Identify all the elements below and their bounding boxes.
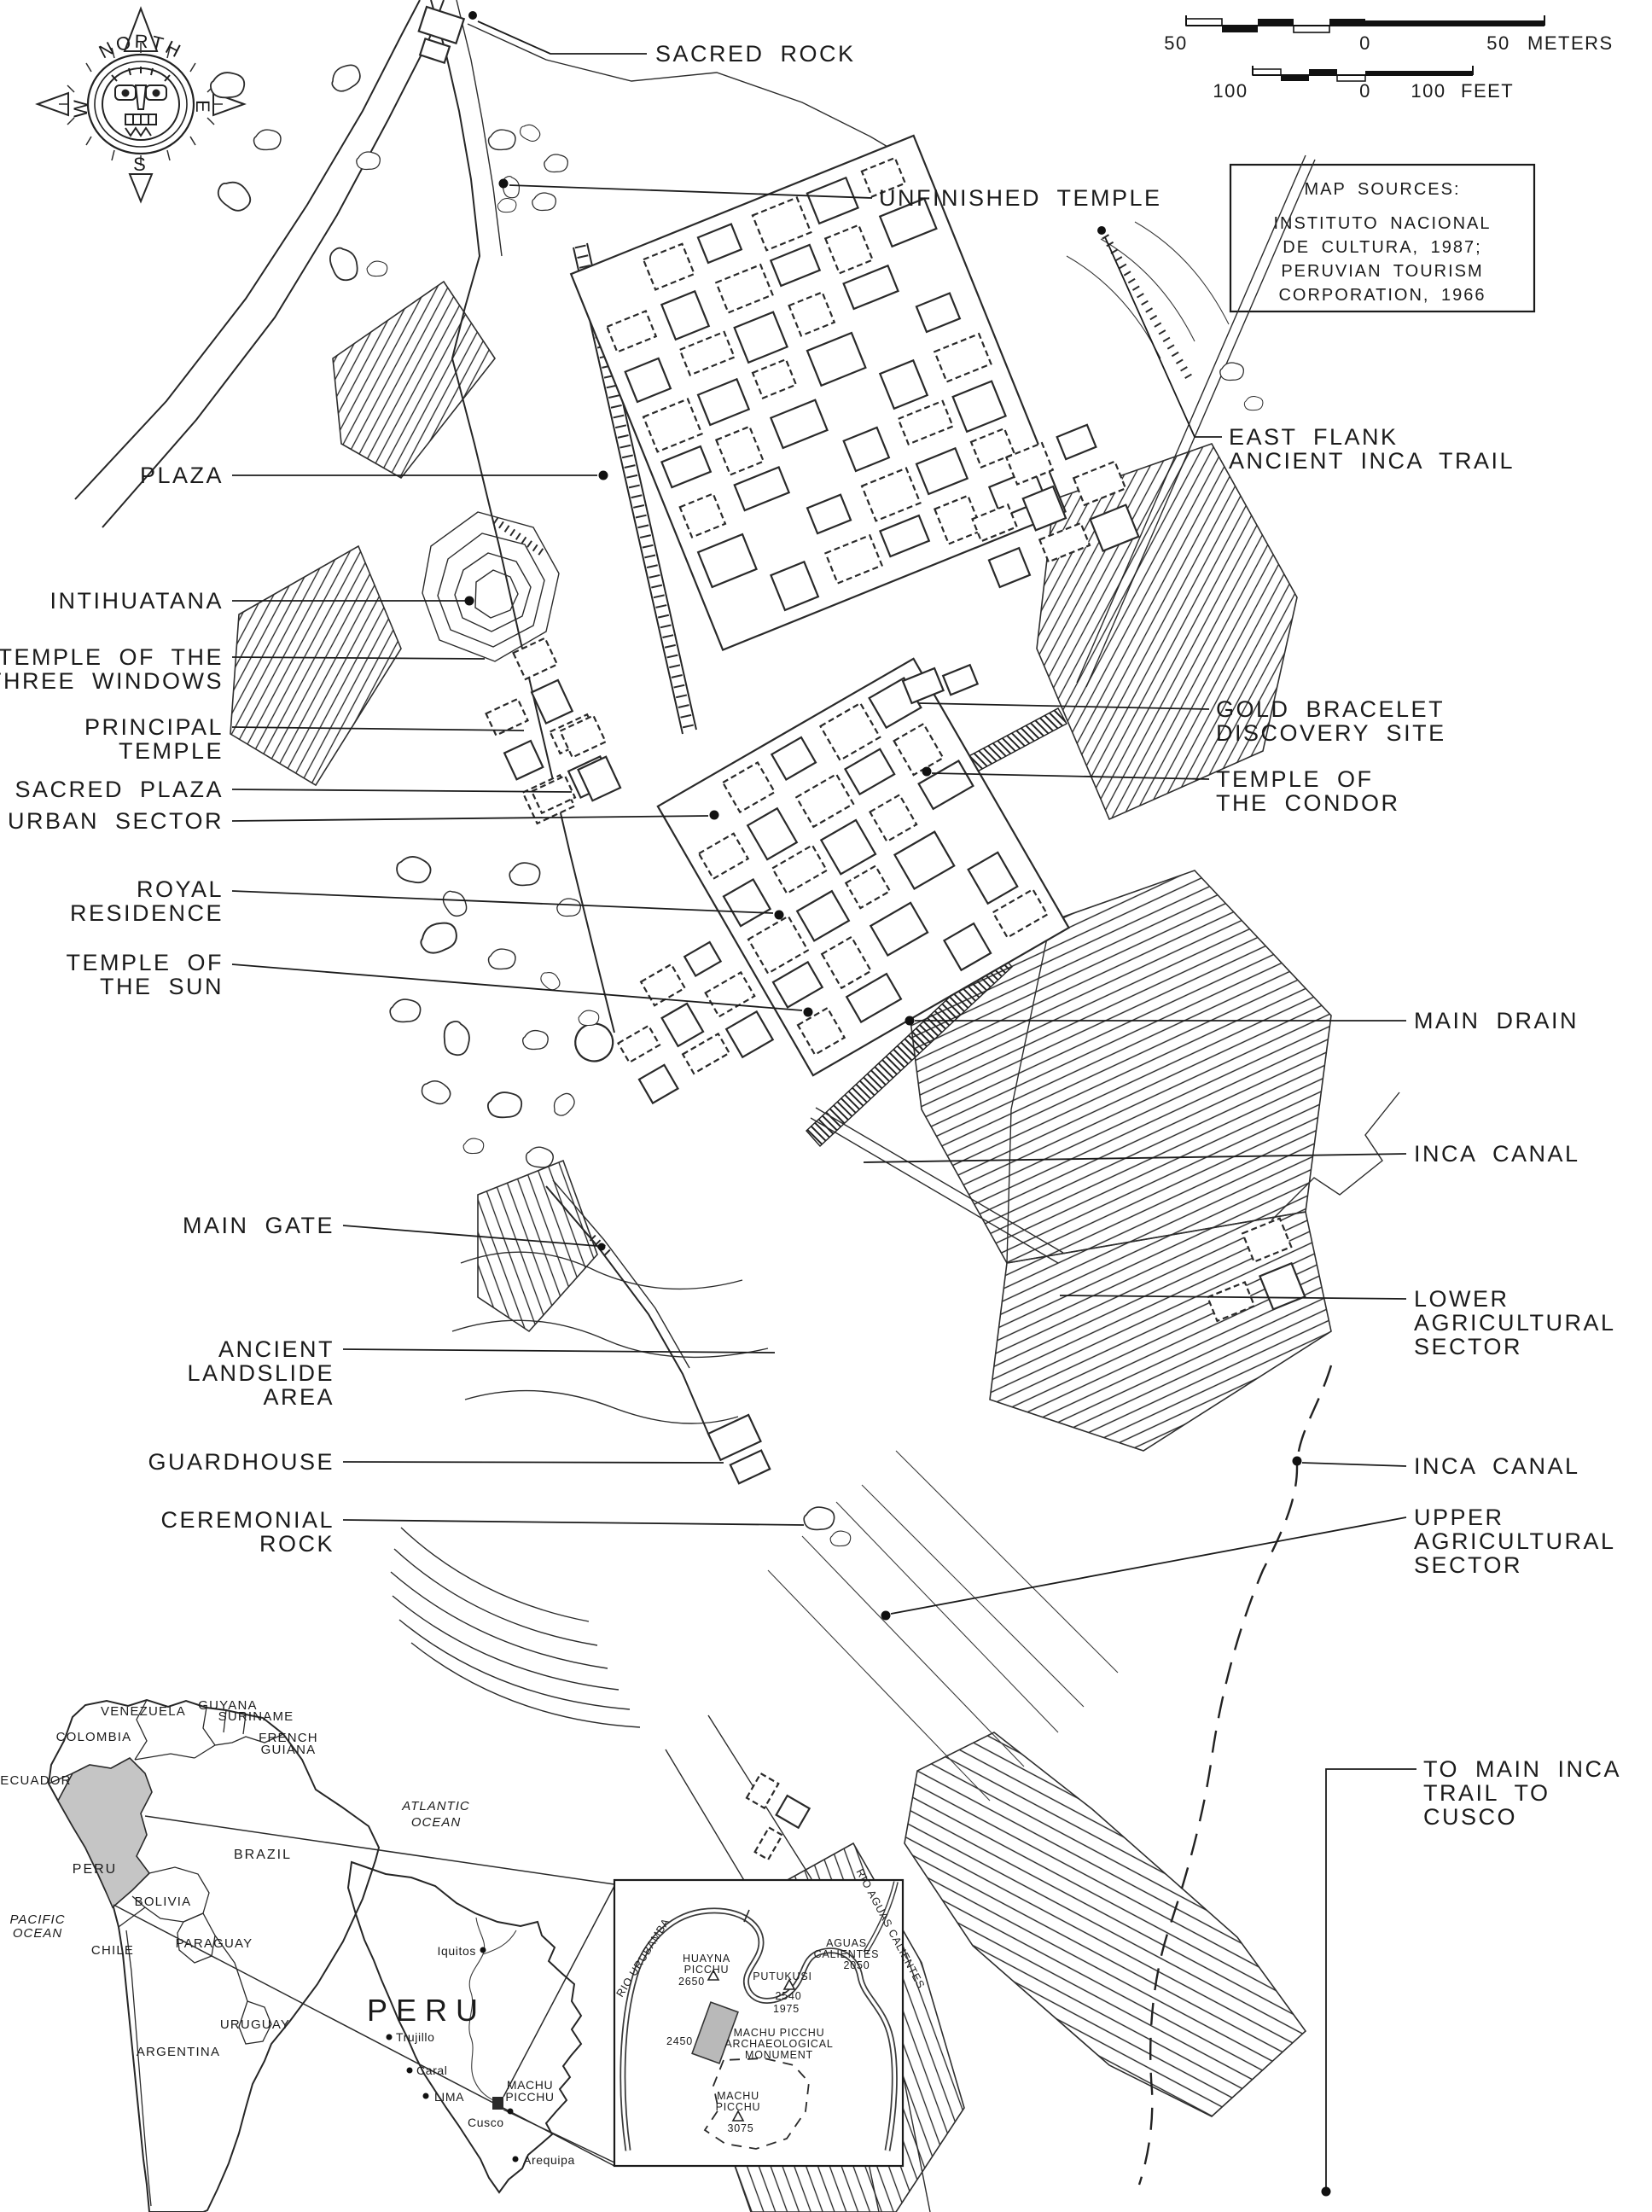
label-lower-1: LOWER [1414, 1286, 1509, 1312]
label-venezuela: VENEZUELA [101, 1704, 186, 1719]
label-huayna-elev: 2650 [678, 1976, 705, 1988]
label-east-flank-2: ANCIENT INCA TRAIL [1229, 448, 1515, 474]
label-cusco-trail-3: CUSCO [1423, 1804, 1517, 1830]
label-guiana: GUIANA [261, 1743, 317, 1757]
label-huayna-1: HUAYNA [683, 1953, 730, 1965]
label-peak-elev: 3075 [727, 2122, 753, 2134]
label-gold-1: GOLD BRACELET [1216, 696, 1445, 722]
compass-south-label: S [133, 154, 148, 175]
label-colombia: COLOMBIA [56, 1730, 132, 1744]
building [706, 972, 755, 1016]
label-chile: CHILE [91, 1943, 134, 1958]
compass-east-label: E [192, 100, 213, 115]
label-upper-3: SECTOR [1414, 1552, 1522, 1578]
label-ceremonial-2: ROCK [259, 1531, 334, 1557]
machu-picchu-map-page: NORTH W E S 50 0 50 METERS 100 0 100 FEE… [0, 0, 1652, 2212]
label-condor-2: THE CONDOR [1216, 790, 1400, 816]
terrace-west-flank [230, 546, 401, 785]
label-peru-sa: PERU [73, 1862, 117, 1877]
label-atlantic-1: ATLANTIC [401, 1799, 469, 1813]
label-cusco-trail-1: TO MAIN INCA [1423, 1756, 1621, 1782]
sources-line3: PERUVIAN TOURISM [1281, 262, 1483, 281]
sources-line2: DE CULTURA, 1987; [1283, 238, 1481, 257]
label-landslide-1: ANCIENT [218, 1336, 334, 1362]
sacred-rock-buildings [412, 7, 464, 64]
label-putukusi: PUTUKUSI [753, 1970, 812, 1982]
label-putukusi-elev: 2540 [775, 1990, 801, 2002]
scale-meters-left: 50 [1164, 32, 1187, 54]
peru-country-inset: PERU Iquitos Trujillo Caral LIMA Cusco A… [348, 1862, 581, 2192]
scale-meters-zero: 0 [1359, 32, 1371, 54]
label-monument-3: MONUMENT [745, 2049, 813, 2061]
label-uruguay: URUGUAY [220, 2017, 290, 2032]
label-mp-2: PICCHU [505, 2090, 554, 2104]
east-flank-trail-hatched [1101, 229, 1190, 380]
inset-projection-lines [113, 1816, 614, 2166]
label-brazil: BRAZIL [234, 1848, 292, 1862]
terrace-near-gate [478, 1161, 597, 1331]
ceremonial-rock [804, 1507, 834, 1529]
scale-feet-unit: FEET [1461, 80, 1514, 102]
label-trujillo: Trujillo [396, 2030, 435, 2044]
label-monument-1: MACHU PICCHU [734, 2027, 825, 2039]
building [747, 1773, 778, 1808]
building [639, 1065, 678, 1103]
scale-feet-zero: 0 [1359, 80, 1371, 102]
urban-sector-buildings [571, 136, 1065, 650]
terrace-upper-west [333, 282, 495, 478]
scale-meters-right: 50 [1486, 32, 1509, 54]
label-plaza: PLAZA [140, 463, 224, 488]
compass-rose: NORTH W E S [38, 9, 244, 201]
scale-meters-unit: METERS [1527, 32, 1614, 54]
label-main-gate: MAIN GATE [183, 1213, 334, 1238]
building [777, 1796, 810, 1828]
label-peak-1: MACHU [717, 2090, 759, 2102]
label-monument-elev: 2450 [666, 2035, 693, 2047]
label-upper-2: AGRICULTURAL [1414, 1528, 1616, 1554]
guardhouse-buildings [708, 1415, 773, 1487]
label-bolivia: BOLIVIA [135, 1895, 192, 1909]
scale-feet-left: 100 [1213, 80, 1248, 102]
south-america-inset: VENEZUELA GUYANA SURINAME FRENCH GUIANA … [0, 1698, 469, 2212]
label-river-elev: 1975 [773, 2003, 800, 2015]
terrace-upper-east [1037, 444, 1297, 819]
compass-west-label: W [70, 97, 91, 118]
building [726, 1011, 773, 1057]
map-sources-box: MAP SOURCES: INSTITUTO NACIONAL DE CULTU… [1230, 165, 1534, 311]
label-pacific-2: OCEAN [13, 1926, 62, 1941]
label-aguas-2: CALIENTES [814, 1948, 880, 1960]
label-unfinished-temple: UNFINISHED TEMPLE [879, 185, 1162, 211]
label-guardhouse: GUARDHOUSE [148, 1449, 334, 1475]
building [684, 942, 720, 976]
label-ceremonial-1: CEREMONIAL [160, 1507, 334, 1533]
label-peak-2: PICCHU [716, 2101, 761, 2113]
building [1057, 425, 1096, 459]
label-sun-1: TEMPLE OF [66, 950, 224, 975]
label-arequipa: Arequipa [523, 2153, 575, 2167]
building [989, 548, 1030, 587]
label-three-windows-2: THREE WINDOWS [0, 668, 224, 694]
label-iquitos: Iquitos [438, 1944, 476, 1958]
label-aguas-1: AGUAS [826, 1937, 867, 1949]
label-caral: Caral [416, 2064, 447, 2077]
label-sacred-plaza: SACRED PLAZA [15, 777, 224, 802]
sources-line1: INSTITUTO NACIONAL [1274, 214, 1492, 233]
label-upper-1: UPPER [1414, 1505, 1504, 1530]
label-condor-1: TEMPLE OF [1216, 766, 1374, 792]
label-lima: LIMA [434, 2090, 464, 2104]
label-monument-2: ARCHAEOLOGICAL [724, 2038, 833, 2050]
label-royal-1: ROYAL [137, 876, 224, 902]
label-sun-2: THE SUN [100, 974, 224, 999]
label-cusco: Cusco [468, 2116, 504, 2129]
label-pacific-1: PACIFIC [9, 1912, 65, 1927]
sources-line4: CORPORATION, 1966 [1278, 286, 1486, 305]
label-intihuatana: INTIHUATANA [49, 588, 224, 614]
label-atlantic-2: OCEAN [411, 1815, 461, 1830]
label-lower-3: SECTOR [1414, 1334, 1522, 1359]
label-peru-country: PERU [367, 1993, 486, 2028]
label-sacred-rock: SACRED ROCK [655, 41, 856, 67]
label-inca-canal-lower: INCA CANAL [1414, 1453, 1580, 1479]
label-royal-2: RESIDENCE [70, 900, 224, 926]
scale-bar-meters: 50 0 50 METERS [1164, 15, 1613, 54]
machu-picchu-marker [492, 2097, 503, 2110]
building [513, 638, 557, 679]
detail-inset: HUAYNA PICCHU 2650 PUTUKUSI 2540 1975 AG… [614, 1867, 928, 2166]
peru-highlight [58, 1758, 152, 1907]
label-suriname: SURINAME [218, 1709, 294, 1724]
label-landslide-2: LANDSLIDE [187, 1360, 334, 1386]
label-principal-2: TEMPLE [119, 738, 224, 764]
label-aguas-elev: 2050 [843, 1959, 870, 1971]
label-inca-canal-upper: INCA CANAL [1414, 1141, 1580, 1167]
building [504, 741, 543, 779]
map-canvas: NORTH W E S 50 0 50 METERS 100 0 100 FEE… [0, 0, 1652, 2212]
label-huayna-2: PICCHU [684, 1964, 730, 1976]
label-argentina: ARGENTINA [137, 2045, 220, 2059]
building [619, 1026, 660, 1062]
label-east-flank-1: EAST FLANK [1229, 424, 1399, 450]
label-cusco-trail-2: TRAIL TO [1423, 1780, 1550, 1806]
intihuatana-hill [422, 512, 559, 661]
label-landslide-3: AREA [263, 1384, 334, 1410]
label-lower-2: AGRICULTURAL [1414, 1310, 1616, 1336]
tail-buildings [725, 1773, 812, 1865]
building [755, 1827, 782, 1860]
label-main-drain: MAIN DRAIN [1414, 1008, 1579, 1033]
label-three-windows-1: TEMPLE OF THE [0, 644, 224, 670]
label-gold-2: DISCOVERY SITE [1216, 720, 1446, 746]
scale-feet-right: 100 [1411, 80, 1445, 102]
label-ecuador: ECUADOR [0, 1773, 71, 1788]
sources-title: MAP SOURCES: [1305, 180, 1461, 199]
temple-of-sun-buildings [563, 936, 778, 1127]
label-urban-sector: URBAN SECTOR [8, 808, 224, 834]
terrace-fan-lower [905, 1732, 1306, 2116]
label-principal-1: PRINCIPAL [84, 714, 224, 740]
scale-bar-feet: 100 0 100 FEET [1213, 66, 1514, 102]
building [662, 1004, 703, 1046]
